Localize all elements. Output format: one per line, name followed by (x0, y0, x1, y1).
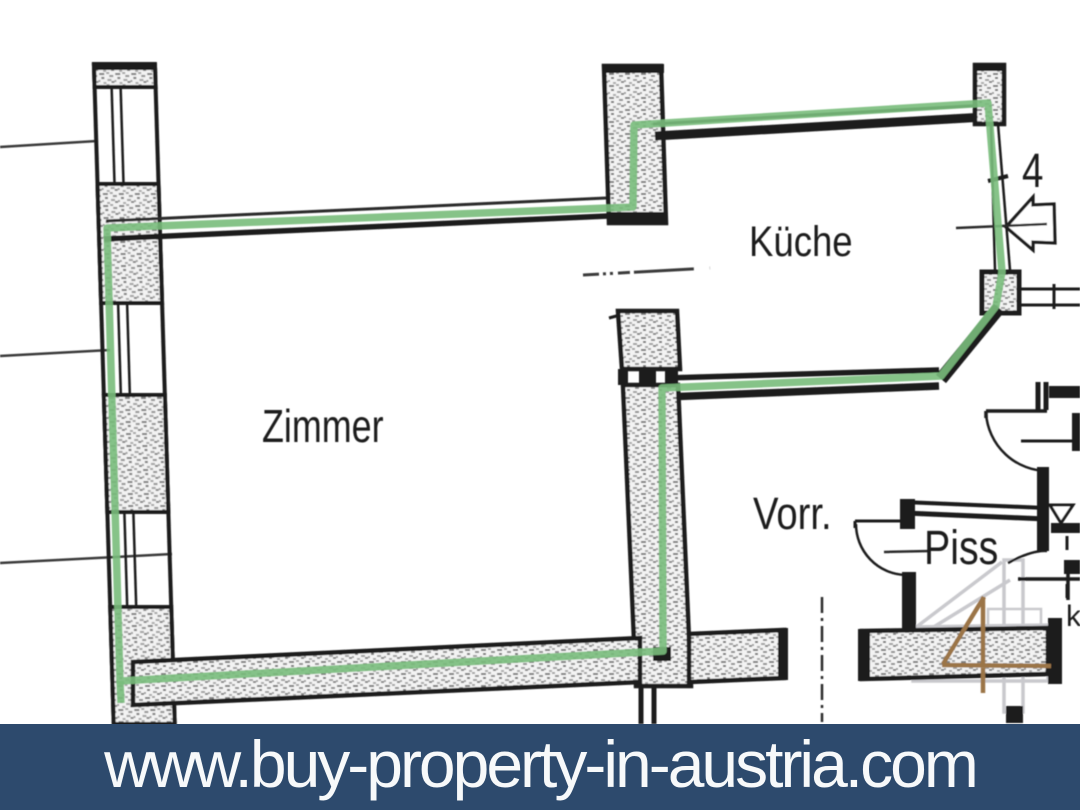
svg-text:Zimmer: Zimmer (262, 401, 384, 452)
svg-text:k: k (1066, 600, 1080, 633)
svg-text:Küche: Küche (749, 218, 853, 265)
svg-text:Vorr.: Vorr. (753, 488, 832, 539)
svg-text:www.buy-property-in-austria.co: www.buy-property-in-austria.com (103, 727, 976, 801)
svg-text:Piss: Piss (924, 521, 998, 575)
svg-text:4: 4 (1022, 145, 1043, 198)
